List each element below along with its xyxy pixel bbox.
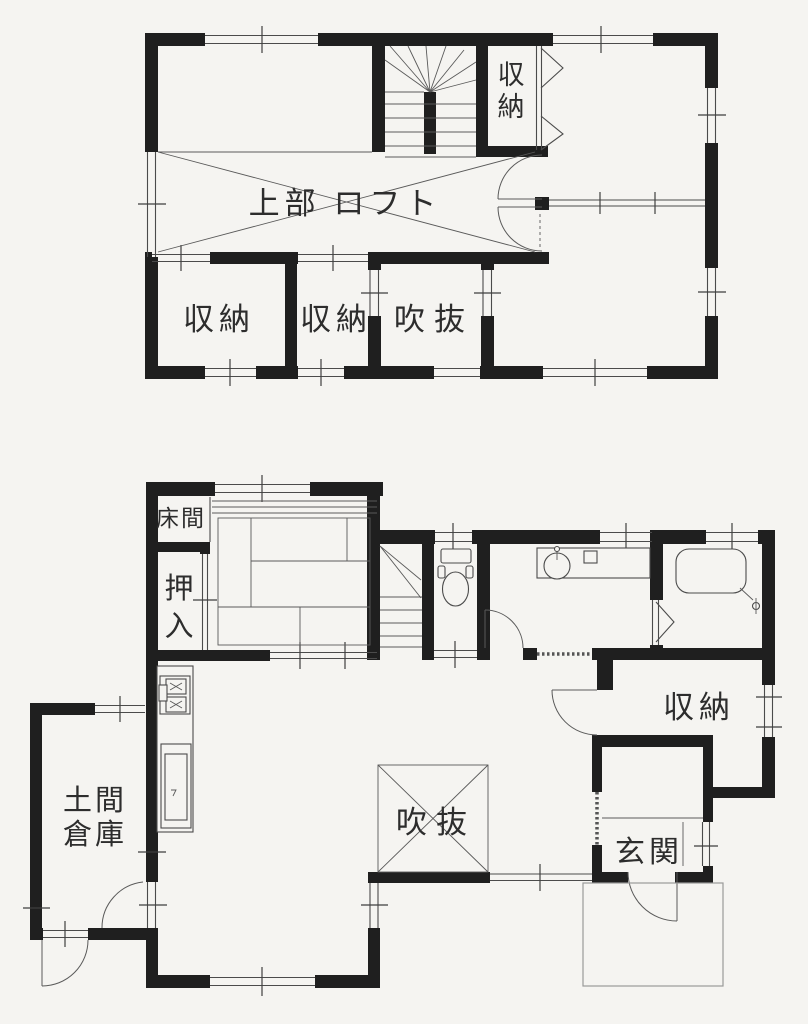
label-lower-storage: 収納 [663, 690, 735, 725]
label-upper-loft: 上部 ロフト [249, 186, 442, 221]
bathtub-fixture [676, 549, 760, 614]
entrance-porch [583, 883, 723, 986]
lower-floor-plan: 床間 押入 土間 倉庫 吹抜 収納 玄関 [23, 475, 782, 996]
label-upper-storage-a: 収納 [183, 302, 255, 337]
floor-plan-drawing: 上部 ロフト 収納 収納 収納 吹抜 [0, 0, 808, 1024]
label-oshiire: 押入 [164, 572, 193, 643]
label-lower-void: 吹抜 [396, 805, 476, 840]
label-upper-void: 吹抜 [394, 302, 474, 337]
label-genkan: 玄関 [615, 836, 683, 869]
label-upper-storage-top: 収納 [498, 60, 525, 122]
label-tokonoma: 床間 [156, 506, 206, 531]
label-doma-line1: 土間 [63, 784, 127, 817]
tatami-room [212, 501, 377, 645]
toilet-fixture [438, 549, 473, 606]
kitchen-unit [157, 666, 193, 832]
label-doma-line2: 倉庫 [63, 818, 127, 851]
upper-floor-plan: 上部 ロフト 収納 収納 収納 吹抜 [138, 26, 726, 386]
lower-walls [30, 482, 775, 988]
floor-plan-page: 上部 ロフト 収納 収納 収納 吹抜 [0, 0, 808, 1024]
label-upper-storage-b: 収納 [300, 302, 372, 337]
lower-stairs [380, 546, 422, 647]
upper-closet-folding-doors [537, 46, 564, 150]
washbasin-fixture [537, 547, 650, 580]
